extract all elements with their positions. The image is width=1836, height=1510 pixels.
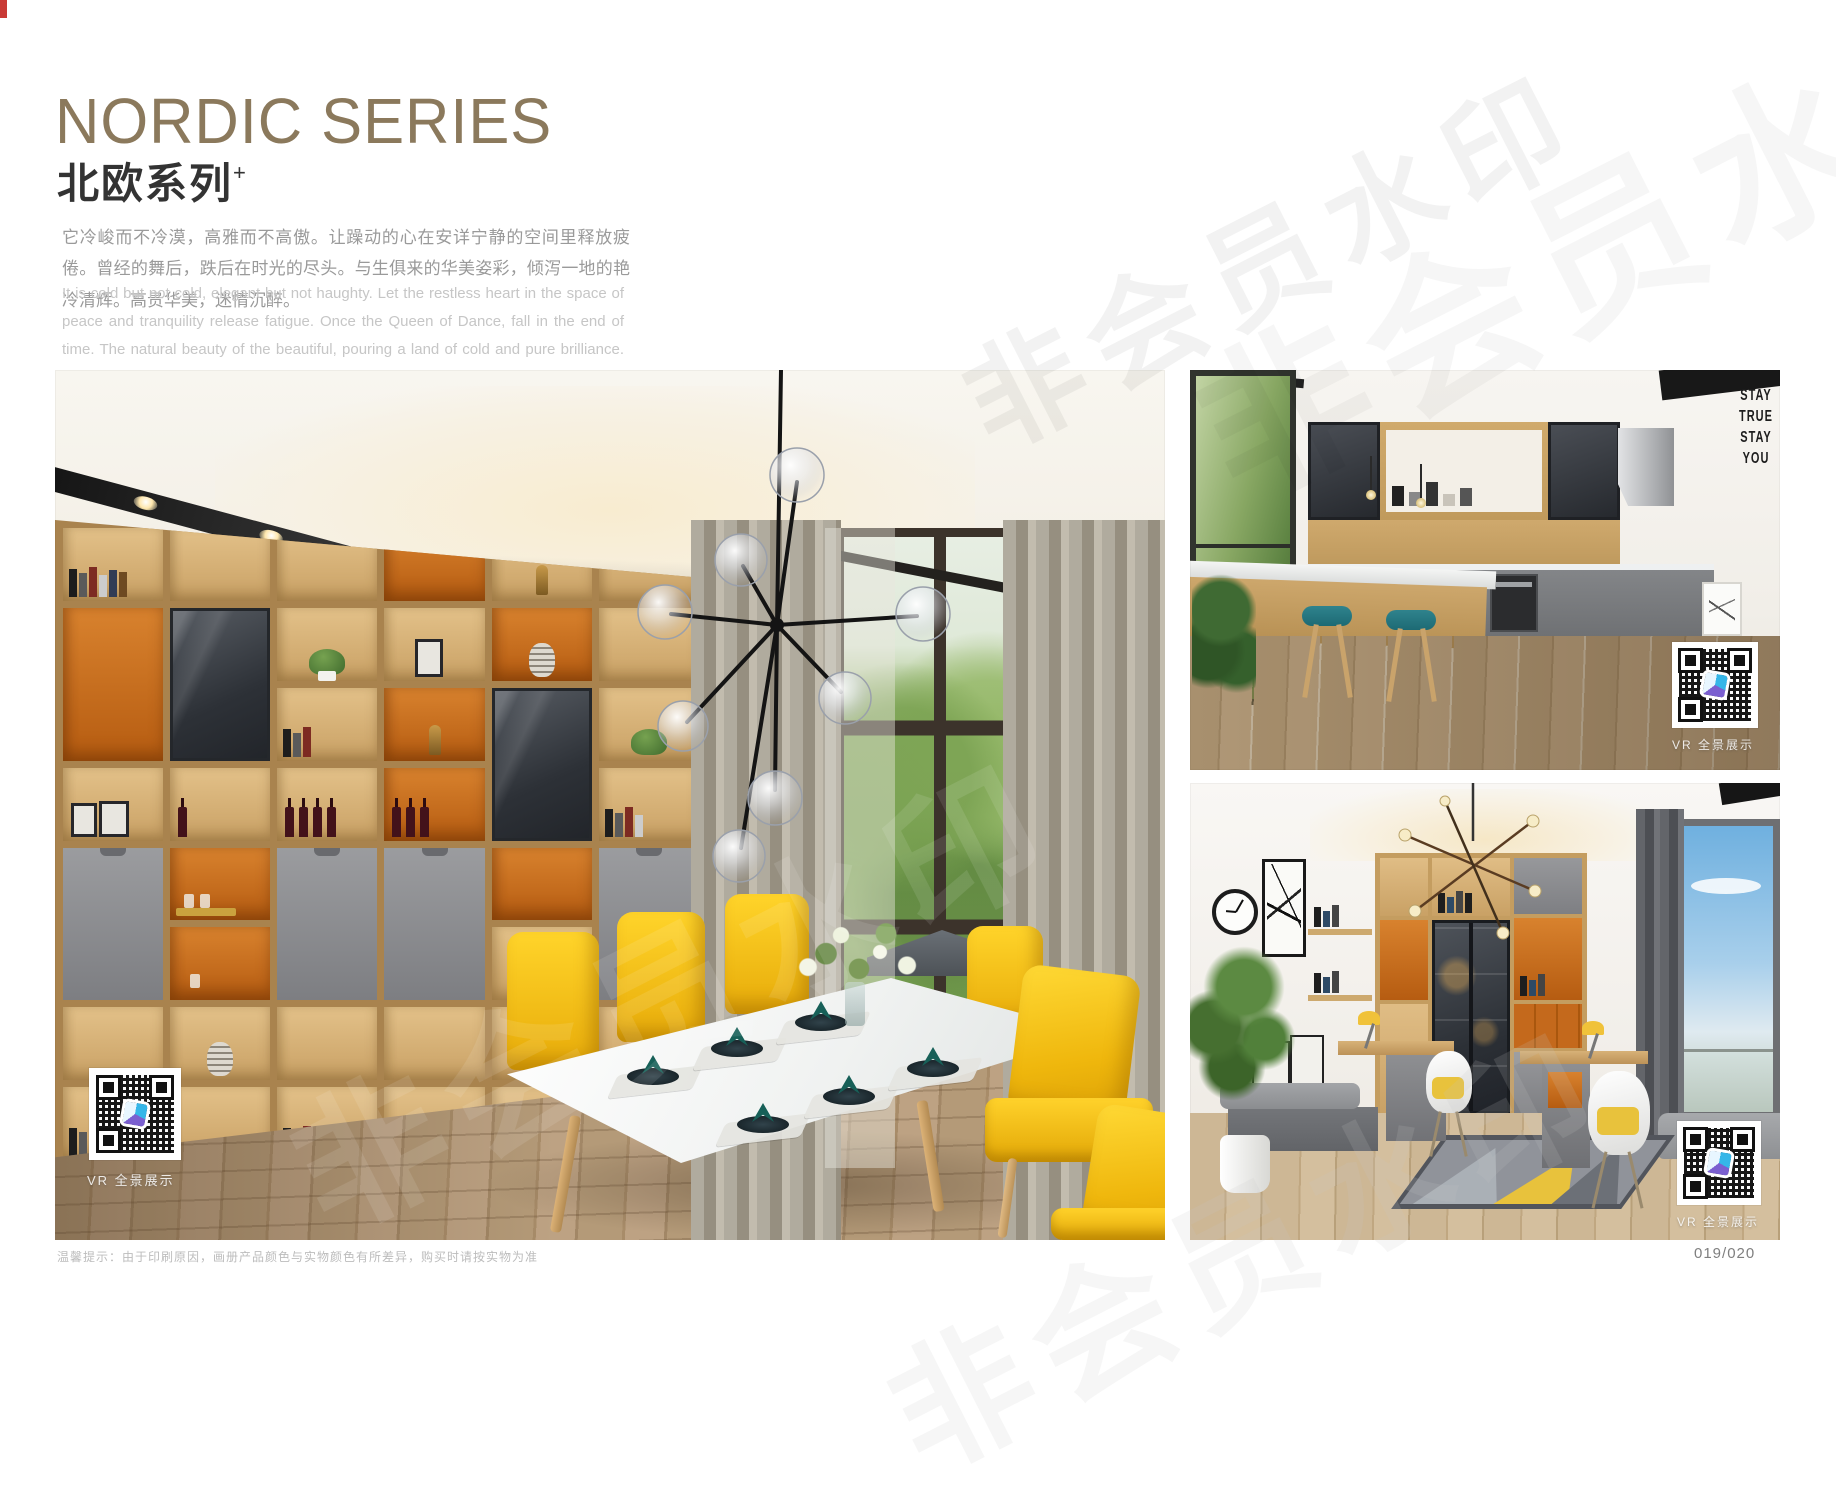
chair-seat-cushion — [1051, 1208, 1165, 1240]
plate-setting — [907, 1060, 959, 1077]
wall-quote-line: TRUE — [1734, 407, 1778, 428]
book-row — [69, 567, 127, 597]
photo-dining-room[interactable]: VR 全景展示 — [55, 370, 1165, 1240]
qr-finder — [1678, 697, 1703, 722]
shell-chair — [1588, 1071, 1650, 1211]
plate-setting — [737, 1116, 789, 1133]
plant-pot — [1220, 1135, 1270, 1193]
qr-finder — [1683, 1174, 1708, 1199]
shelf-cell — [277, 1007, 377, 1080]
qr-finder — [1727, 648, 1752, 673]
shelf-cell — [170, 1007, 270, 1080]
picture-frame — [71, 803, 97, 837]
shelf-cell-orange — [384, 768, 484, 841]
range-hood — [1618, 428, 1674, 506]
shelf-items — [1392, 482, 1472, 506]
qr-finder — [1683, 1127, 1708, 1152]
wall-clock — [1212, 889, 1258, 935]
shelf-cell — [63, 528, 163, 601]
plate-setting — [711, 1040, 763, 1057]
floor-plant — [1190, 943, 1298, 1143]
wall-quote-line: STAY — [1734, 386, 1778, 407]
qr-finder — [96, 1128, 121, 1153]
subtitle-text: 北欧系列 — [57, 160, 233, 207]
wine-bottle-stand — [178, 807, 192, 837]
shelf-cell — [384, 1007, 484, 1080]
chair-cushion-yellow — [1597, 1107, 1639, 1135]
lamp-head — [1358, 1011, 1380, 1025]
serving-tray — [176, 908, 236, 916]
shelf-cell-orange — [170, 848, 270, 921]
shelf-cell — [170, 768, 270, 841]
dining-chair-yellow — [507, 932, 599, 1070]
window — [1676, 819, 1780, 1119]
dining-chair-yellow — [617, 912, 705, 1042]
wine-bottles — [392, 807, 434, 837]
flower-vase — [845, 982, 865, 1026]
glass-cabinet — [1548, 422, 1620, 520]
pendant-lamp — [1416, 498, 1426, 508]
qr-finder — [1678, 648, 1703, 673]
page-title: NORDIC SERIES — [55, 84, 552, 158]
stool-seat — [1386, 610, 1436, 630]
chair-leg — [1628, 1151, 1644, 1208]
vr-label: VR 全景展示 — [1672, 736, 1754, 753]
plate-setting — [823, 1088, 875, 1105]
shelf-cell — [384, 608, 484, 681]
wall-quote-line: STAY — [1734, 428, 1778, 449]
glassware — [200, 894, 210, 908]
wine-bottles — [285, 807, 341, 837]
vr-qr-code[interactable] — [1672, 642, 1758, 728]
chair-cushion-yellow — [1432, 1077, 1464, 1099]
vr-qr-code[interactable] — [1677, 1121, 1761, 1205]
photo-kitchen[interactable]: STAY TRUE STAY YOU VR 全景展示 — [1190, 370, 1780, 770]
chair-leg — [1455, 1111, 1467, 1157]
trophy — [429, 725, 441, 755]
shelf-books — [1520, 974, 1545, 996]
desk-right — [1520, 1051, 1648, 1064]
qr-logo — [122, 1101, 147, 1126]
wall-shelf — [1308, 929, 1372, 935]
glassware — [190, 974, 200, 988]
shell-chair — [1426, 1051, 1472, 1161]
wall-quote-decal: STAY TRUE STAY YOU — [1734, 386, 1778, 469]
shelf-books — [1314, 971, 1339, 993]
catalog-page: { "watermark": { "text": "非会员水印" }, "hea… — [0, 0, 1836, 1307]
shelf-cell — [277, 768, 377, 841]
chair-leg — [997, 1158, 1017, 1238]
qr-finder — [96, 1075, 121, 1100]
chair-leg — [1592, 1151, 1608, 1208]
wall-quote-line: YOU — [1734, 448, 1778, 469]
wall-shelf — [1308, 995, 1372, 1001]
dining-armchair-yellow — [1045, 1112, 1165, 1240]
ceiling-beam — [1719, 783, 1780, 805]
potted-plant — [1192, 570, 1256, 705]
qr-logo — [1702, 672, 1727, 697]
shelf-cell-orange — [384, 688, 484, 761]
vr-label: VR 全景展示 — [1677, 1213, 1759, 1230]
vr-label: VR 全景展示 — [87, 1170, 175, 1189]
open-shelf — [1386, 430, 1542, 512]
chandelier-hub — [770, 618, 784, 632]
sputnik-chandelier — [545, 370, 1005, 910]
picture-frame — [99, 801, 129, 837]
photo-study-room[interactable]: VR 全景展示 — [1190, 783, 1780, 1240]
picture-frame — [415, 639, 443, 677]
shelf-books — [1314, 905, 1339, 927]
page-subtitle: 北欧系列+ — [57, 150, 248, 211]
glassware — [184, 894, 194, 908]
plate-setting — [795, 1014, 847, 1031]
shelf-cell — [170, 528, 270, 601]
upper-cabinets — [1308, 422, 1620, 520]
chair-leg — [1429, 1111, 1441, 1157]
plate-setting — [627, 1068, 679, 1085]
qr-finder — [149, 1075, 174, 1100]
qr-finder — [1730, 1127, 1755, 1152]
plant-pot — [318, 671, 336, 681]
cabinet-door-gray — [277, 848, 377, 1001]
spotlight — [132, 494, 159, 513]
subtitle-plus-mark: + — [233, 160, 248, 185]
sputnik-pendant-lamp — [1385, 783, 1555, 943]
shelf-niche-orange — [63, 608, 163, 761]
footer-disclaimer: 温馨提示：由于印刷原因，画册产品颜色与实物颜色有所差异，购买时请按实物为准 — [57, 1248, 538, 1265]
striped-vase — [207, 1042, 233, 1076]
book-row — [283, 727, 311, 757]
stool-seat — [1302, 606, 1352, 626]
window-pane-sky — [1683, 826, 1773, 1112]
cabinet-door-gray — [384, 848, 484, 1001]
page-number: 019/020 — [1694, 1245, 1755, 1262]
lamp-head — [1582, 1021, 1604, 1035]
vr-qr-code[interactable] — [89, 1068, 181, 1160]
backsplash-panel — [1308, 520, 1620, 564]
corner-mark — [0, 0, 7, 18]
leaning-art-frame — [1702, 582, 1742, 636]
desk-pedestal — [1542, 1064, 1590, 1168]
shelf-cell — [277, 608, 377, 681]
shelf-cell — [277, 688, 377, 761]
pendant-lamp — [1366, 490, 1376, 500]
built-in-oven — [1490, 574, 1538, 632]
glass-display-cabinet — [170, 608, 270, 761]
cabinet-door-gray — [63, 848, 163, 1001]
cubby-grid-orange — [1514, 1004, 1582, 1048]
shelf-cell — [63, 768, 163, 841]
qr-logo — [1706, 1150, 1731, 1175]
shelf-cell-orange — [170, 927, 270, 1000]
